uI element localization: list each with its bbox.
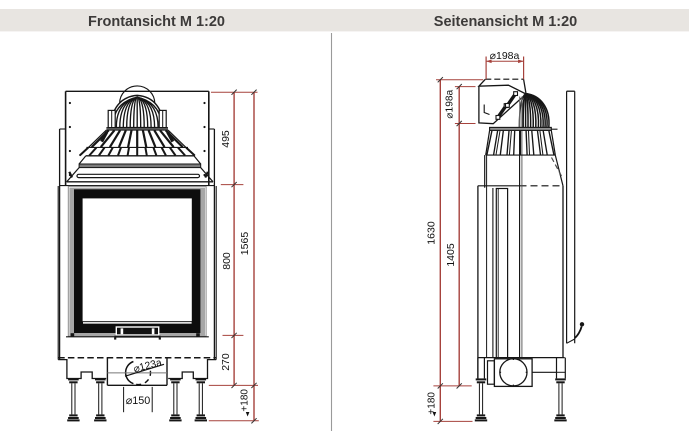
svg-text:1405: 1405 [445,243,457,267]
svg-text:+180: +180 [426,392,437,415]
svg-text:1565: 1565 [239,232,251,256]
svg-text:Frontansicht M 1:20: Frontansicht M 1:20 [88,14,225,30]
svg-text:270: 270 [220,353,232,371]
svg-text:⌀198a: ⌀198a [490,50,520,62]
svg-text:+180: +180 [240,389,251,412]
svg-text:⌀198a: ⌀198a [445,89,456,118]
svg-text:495: 495 [220,130,232,148]
svg-text:Seitenansicht M 1:20: Seitenansicht M 1:20 [434,14,577,30]
svg-text:800: 800 [221,252,233,270]
svg-text:1630: 1630 [426,221,438,245]
svg-text:⌀150: ⌀150 [126,395,151,407]
